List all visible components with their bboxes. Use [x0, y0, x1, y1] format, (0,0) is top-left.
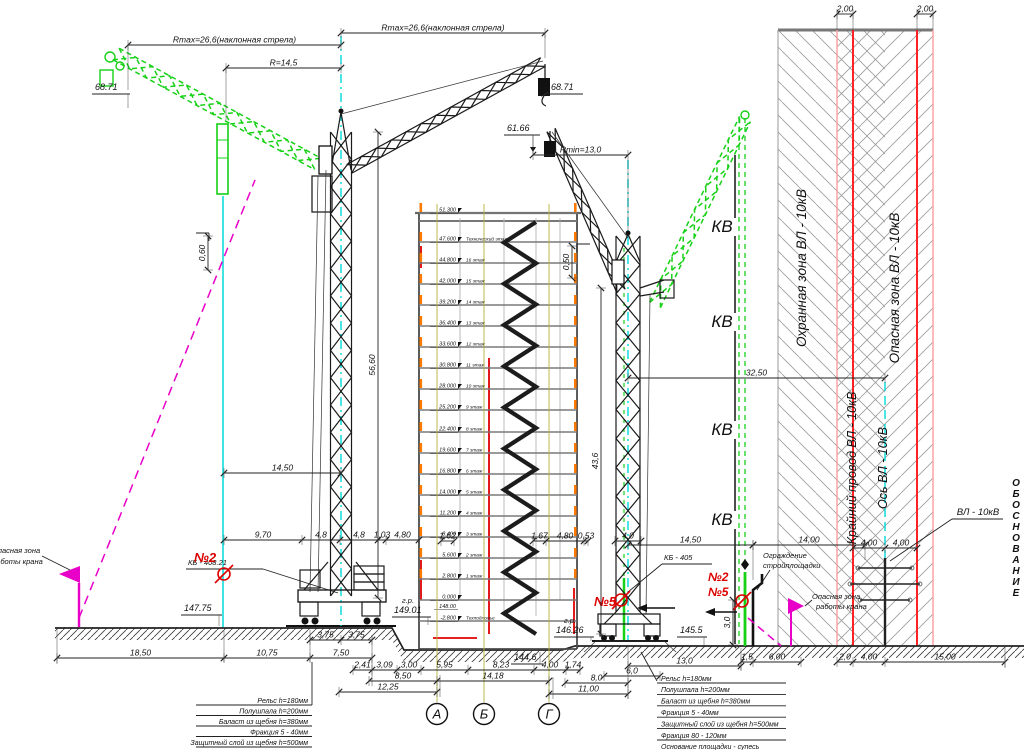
formwork-clamp — [574, 232, 577, 241]
floor-row: 16.8006 этаж — [419, 464, 577, 475]
spec-row-label: Баласт из щебня h=380мм — [661, 698, 750, 706]
spec-tables: Рельс h=180ммПолушпала h=200ммБаласт из … — [190, 652, 786, 750]
elev-hook-left-crane: 68.71 — [551, 82, 574, 92]
dim-label: 1,5 — [741, 652, 753, 662]
kv-label: КВ — [711, 510, 732, 529]
danger-label-right-1: Опасная зона — [812, 592, 860, 601]
guard-zone-label: Охранная зона ВЛ - 10кВ — [794, 189, 809, 347]
formwork-clamp — [420, 548, 423, 557]
floor-elevation: 51.300 — [439, 208, 457, 214]
formwork-clamp — [420, 400, 423, 409]
crane-number-5-fence: №5 — [708, 585, 729, 599]
floor-elevation: -2.800 — [440, 616, 457, 622]
danger-label-left-2: работы крана — [0, 557, 43, 566]
formwork-clamp — [420, 295, 423, 304]
green-hook-block — [217, 124, 228, 194]
floor-elevation: 44.800 — [439, 258, 457, 264]
dim-label: 5,95 — [436, 660, 453, 670]
formwork-clamp — [574, 295, 577, 304]
dim-label: 3,09 — [376, 660, 393, 670]
dim-label: 10,75 — [256, 648, 278, 658]
spec-row-label: Полушпала h=200мм — [661, 687, 730, 694]
hook-block-left — [538, 78, 550, 96]
floor-label: 13 этаж — [466, 321, 486, 327]
bogie — [300, 602, 318, 616]
floor-elevation: 42.000 — [439, 279, 457, 285]
floor-elevation: 14.000 — [439, 490, 457, 496]
spec-row-label: Фракция 5 - 40мм — [250, 730, 308, 737]
danger-boundary-dashed-left — [79, 180, 255, 618]
formwork-clamp — [420, 464, 423, 473]
dim-label: 3,00 — [401, 660, 418, 670]
floor-label: 11 этаж — [466, 363, 485, 369]
floor-elevation: 16.800 — [439, 469, 457, 475]
dim-label: 11,00 — [578, 684, 599, 694]
building-section: 51.30047.600Технический этаж44.80016 эта… — [415, 203, 581, 725]
wheel — [601, 635, 607, 641]
dim-label: 0,53 — [578, 531, 595, 541]
floor-label: 10 этаж — [466, 384, 486, 390]
floor-sub-elevation: 148.00 — [439, 604, 457, 610]
formwork-clamp — [420, 358, 423, 367]
ballast-slab — [354, 582, 384, 590]
formwork-clamp — [420, 274, 423, 283]
dim-label: 8,23 — [493, 660, 510, 670]
axis-bubble-label: Г — [545, 707, 553, 722]
apex-pulley — [339, 109, 344, 114]
elev-hook-green: 68.71 — [95, 82, 118, 92]
dim-row: 18,5010,757,50 — [54, 648, 375, 664]
dim-row: 1,674,800,53 — [530, 531, 595, 547]
wheel — [653, 635, 659, 641]
floor-elevation: 39.200 — [439, 300, 457, 306]
floor-row: 30.80011 этаж — [419, 358, 577, 369]
formwork-clamp — [420, 379, 423, 388]
formwork-clamp — [574, 464, 577, 473]
floor-elevation: 36.400 — [439, 321, 457, 327]
elev-ground-right: 145.5 — [680, 625, 704, 635]
dim-label: 4,0 — [622, 531, 634, 541]
base-platform — [298, 590, 386, 602]
side-vertical-text: ОБОСНОВАНИЕ — [1011, 478, 1020, 599]
spec-row-label: Рельс h=180мм — [257, 698, 308, 705]
dim-label: 14,50 — [272, 463, 294, 473]
floor-label: 4 этаж — [466, 511, 483, 517]
dim-label: 9,70 — [255, 530, 272, 540]
kv-label: КВ — [711, 420, 732, 439]
dim-label: 12,25 — [377, 682, 399, 692]
dim-label: 1,67 — [531, 531, 548, 541]
spec-row-label: Защитный слой из щебня h=500мм — [661, 720, 779, 728]
dim-row: R=14,5 — [223, 58, 344, 74]
floor-label: 14 этаж — [466, 300, 486, 306]
floor-row: 25.2009 этаж — [419, 400, 577, 411]
formwork-clamp — [574, 316, 577, 325]
formwork-clamp — [420, 232, 423, 241]
floor-row: 14.0005 этаж — [419, 485, 577, 496]
dim-label: 2,0 — [838, 652, 851, 662]
floor-row: -2.800Техподполье — [419, 616, 577, 622]
floor-label: 5 этаж — [466, 490, 483, 496]
formwork-clamp — [420, 203, 423, 212]
crane-left-jib — [347, 66, 546, 165]
wheel — [609, 635, 615, 641]
floor-elevation: 0.000 — [442, 595, 457, 601]
dim-label: 56,60 — [367, 354, 377, 376]
dim-label: 3,75 — [348, 630, 365, 640]
crane-right-model-label: КБ - 405 — [664, 553, 693, 562]
dim-label: 32,50 — [746, 368, 768, 378]
danger-label-left-1: Опасная зона — [0, 546, 40, 555]
dim-label: 4,00 — [861, 538, 878, 548]
elev-rail-right: 146.26 — [556, 625, 584, 635]
vdim: 0,60 — [197, 233, 213, 273]
formwork-clamp — [420, 506, 423, 515]
gap-mark-right — [577, 244, 590, 252]
dim-row: Rmax=26,6(наклонная стрела) — [125, 35, 344, 51]
edge-wire-label: Крайний провод ВЛ - 10кВ — [845, 392, 859, 545]
green-boom-head-pulley2 — [116, 62, 124, 70]
crane-mark-symbol-left — [215, 565, 233, 583]
floor-elevation: 33.600 — [439, 342, 457, 348]
floor-elevation: 19.600 — [439, 448, 457, 454]
wheel — [312, 618, 319, 625]
danger-zone-label: Опасная зона ВЛ - 10кВ — [887, 213, 902, 364]
dim-label: 2,41 — [353, 660, 371, 670]
formwork-clamp — [420, 316, 423, 325]
floor-elevation: 47.600 — [439, 237, 457, 243]
floor-label: 6 этаж — [466, 469, 483, 475]
formwork-clamp — [574, 527, 577, 536]
floor-label: 3 этаж — [466, 532, 483, 538]
formwork-clamp — [574, 506, 577, 515]
spec-row-label: Фракция 5 - 40мм — [661, 710, 719, 717]
dim-label: 2,00 — [916, 4, 934, 14]
green-boom-left-lattice — [113, 57, 315, 169]
formwork-clamp — [574, 337, 577, 346]
dim-label: 4,00 — [542, 660, 559, 670]
dim-label: R=14,5 — [270, 58, 298, 68]
wheel — [374, 618, 381, 625]
dim-label: 4,8 — [353, 530, 365, 540]
floor-elevation: 25.200 — [438, 405, 457, 411]
formwork-clamp — [574, 485, 577, 494]
gap-mark-left — [196, 233, 209, 241]
axis-bubble-label: Б — [480, 707, 489, 722]
dim-row: 14,50 — [221, 463, 344, 479]
floor-label: Техподполье — [466, 616, 495, 622]
spec-row-label: Фракция 80 - 120мм — [661, 733, 727, 740]
dim-label: 7,50 — [333, 648, 350, 658]
floor-elevation: 5.600 — [442, 553, 457, 559]
dim-label: 4,8 — [315, 530, 327, 540]
dim-row: 14,50 — [625, 535, 756, 551]
dim-label: 0,60 — [197, 244, 207, 261]
floor-label: 16 этаж — [466, 258, 486, 264]
operator-cab-right — [612, 260, 624, 284]
formwork-clamp — [420, 253, 423, 262]
spec-row-label: Рельс h=180мм — [661, 676, 712, 683]
formwork-clamp — [574, 274, 577, 283]
wheel — [302, 618, 309, 625]
flag-leader-left — [42, 556, 70, 570]
dim-label: 18,50 — [130, 648, 152, 658]
floor-row: 19.6007 этаж — [419, 443, 577, 454]
kv-label: КВ — [711, 217, 732, 236]
axis-lines — [223, 36, 628, 640]
floor-elevation: 2.800 — [441, 574, 457, 580]
crane-right-mast — [616, 236, 640, 612]
dim-label: 0,50 — [561, 253, 571, 270]
dim-label: 4,00 — [893, 538, 910, 548]
fence-label-2: стройплощадки — [763, 561, 821, 570]
floor-row: 42.00015 этаж — [419, 274, 577, 285]
floor-slabs: 51.30047.600Технический этаж44.80016 эта… — [419, 203, 577, 622]
dim-label: 1,03 — [374, 530, 391, 540]
floor-row: 44.80016 этаж — [419, 253, 577, 264]
dim-label: 15,00 — [934, 652, 956, 662]
green-boom-right-lattice — [650, 116, 740, 302]
floor-elevation: 30.800 — [439, 363, 457, 369]
floor-row: 2.8001 этаж — [419, 569, 577, 580]
dim-label: 14,50 — [680, 535, 702, 545]
floor-label: 2 этаж — [465, 553, 483, 559]
dim-label: 1,74 — [565, 660, 582, 670]
dim-row: 12,25 — [336, 682, 440, 698]
dim-label: 6,00 — [769, 652, 786, 662]
dim-label: Rmin=13,0 — [560, 145, 602, 155]
floor-label: 12 этаж — [466, 342, 486, 348]
apex-pulley-right — [626, 231, 631, 236]
crane-number-2-fence: №2 — [708, 570, 729, 584]
crane-number-2-left: №2 — [194, 550, 217, 565]
floor-elevation: 22.400 — [438, 427, 457, 433]
spec-row-label: Защитный слой из щебня h=500мм — [190, 739, 308, 747]
wheel — [364, 618, 371, 625]
formwork-clamp — [574, 379, 577, 388]
crane-left — [298, 58, 550, 625]
drawing-canvas: 51.30047.600Технический этаж44.80016 эта… — [0, 0, 1024, 750]
elevation-marks: 68.71 68.71 61.66 147.75 г.р. 149.01 г.р… — [92, 82, 707, 664]
counterweight-box — [312, 176, 332, 212]
vl-label: ВЛ - 10кВ — [957, 507, 1000, 518]
elev-ground-left: 147.75 — [184, 603, 213, 613]
wheel — [645, 635, 651, 641]
floor-row: 0.000148.00 — [419, 595, 577, 611]
floor-row: 28.00010 этаж — [419, 379, 577, 390]
dim-label: 43,6 — [590, 452, 600, 469]
dim-label: Rmax=26,6(наклонная стрела) — [173, 35, 296, 45]
dim-label: 3,0 — [722, 616, 732, 628]
formwork-clamp — [420, 527, 423, 536]
elev-hook-right-crane: 61.66 — [507, 123, 530, 133]
dim-label: 14,00 — [798, 535, 820, 545]
spec-row-label: Полушпала h=200мм — [239, 709, 308, 716]
floor-row: 5.6002 этаж — [419, 548, 577, 559]
floor-row: 22.4008 этаж — [419, 422, 577, 433]
green-boom-right-pulley — [741, 111, 749, 119]
floor-row: 33.60012 этаж — [419, 337, 577, 348]
dim-label: 8,0 — [591, 673, 603, 683]
dim-label: 4,80 — [557, 531, 574, 541]
rail-level-prefix-left: г.р. — [402, 596, 414, 605]
dim-label: 13,0 — [676, 656, 693, 666]
signal-post-diamond — [741, 559, 749, 570]
formwork-clamp — [420, 569, 423, 578]
floor-row: 11.2004 этаж — [419, 506, 577, 517]
hoist-rope-right — [646, 295, 650, 614]
fence-label-1: Ограждение — [763, 551, 807, 560]
dim-label: 2,00 — [836, 4, 854, 14]
formwork-clamp — [574, 253, 577, 262]
bogie — [362, 602, 380, 616]
formwork-clamp — [574, 358, 577, 367]
dim-label: 1,62 — [439, 531, 456, 541]
formwork-clamp — [574, 203, 577, 212]
formwork-clamp — [574, 569, 577, 578]
formwork-clamp — [574, 422, 577, 431]
floor-label: 15 этаж — [466, 279, 486, 285]
formwork-clamp — [420, 337, 423, 346]
dim-label: 3,75 — [317, 630, 334, 640]
danger-zone-flags — [42, 180, 812, 646]
crane-left-lattice — [331, 58, 546, 596]
dim-row: 11,00 — [546, 684, 631, 700]
operator-cab — [319, 146, 332, 174]
rail-level-prefix-right: г.р. — [564, 616, 576, 625]
dim-label: 4,80 — [394, 530, 411, 540]
floor-label: 7 этаж — [466, 448, 483, 454]
dim-label: Rmax=26,6(наклонная стрела) — [381, 23, 504, 33]
floor-row: 36.40013 этаж — [419, 316, 577, 327]
formwork-clamp — [574, 443, 577, 452]
floor-label: 8 этаж — [466, 427, 483, 433]
hook-left — [542, 96, 546, 106]
spec-row-label: Основание площадки - супесь — [661, 743, 760, 750]
formwork-clamp — [574, 400, 577, 409]
formwork-clamp — [574, 548, 577, 557]
dim-row: 6,0 — [601, 666, 663, 682]
dim-row: Rmax=26,6(наклонная стрела) — [338, 23, 548, 39]
ballast-slab — [354, 566, 384, 574]
leader-line — [628, 564, 662, 592]
dim-row: 1,62 — [438, 531, 457, 547]
vl-axis-label: Ось ВЛ - 10кВ — [876, 427, 890, 509]
side-vertical-text: ОБОСНОВАНИЕ — [1011, 478, 1020, 599]
crane-right — [544, 128, 674, 641]
floor-row: 39.20014 этаж — [419, 295, 577, 306]
dim-label: 14,18 — [482, 671, 504, 681]
spec-row-label: Баласт из щебня h=380мм — [219, 718, 308, 726]
floor-elevation: 28.000 — [438, 384, 457, 390]
vdim: 43,6 — [590, 285, 606, 637]
danger-label-right-2: работы крана — [815, 602, 867, 611]
kv-label: КВ — [711, 312, 732, 331]
floor-label: 9 этаж — [466, 405, 483, 411]
floor-label: 1 этаж — [466, 574, 483, 580]
elev-rail-left: 149.01 — [394, 605, 422, 615]
construction-crane-section-drawing: 51.30047.600Технический этаж44.80016 эта… — [0, 0, 1024, 750]
fence-leader — [757, 570, 770, 590]
dim-row: 9,704,84,81,034,80 — [221, 530, 422, 546]
dim-label: 8,50 — [395, 671, 412, 681]
green-boom-head-pulley — [105, 52, 115, 62]
floor-row: 47.600Технический этаж — [419, 232, 577, 243]
floor-elevation: 11.200 — [440, 511, 457, 517]
jib-pendant — [341, 61, 543, 114]
direction-arrowhead-2 — [705, 608, 715, 616]
formwork-clamp — [420, 443, 423, 452]
formwork-clamp — [420, 485, 423, 494]
axis-bubble-label: А — [432, 707, 442, 722]
danger-flag-left — [59, 566, 80, 583]
formwork-clamp — [420, 422, 423, 431]
bogie — [644, 624, 660, 636]
dim-label: 4,00 — [861, 652, 878, 662]
elev-pit: 144.6 — [514, 652, 537, 662]
